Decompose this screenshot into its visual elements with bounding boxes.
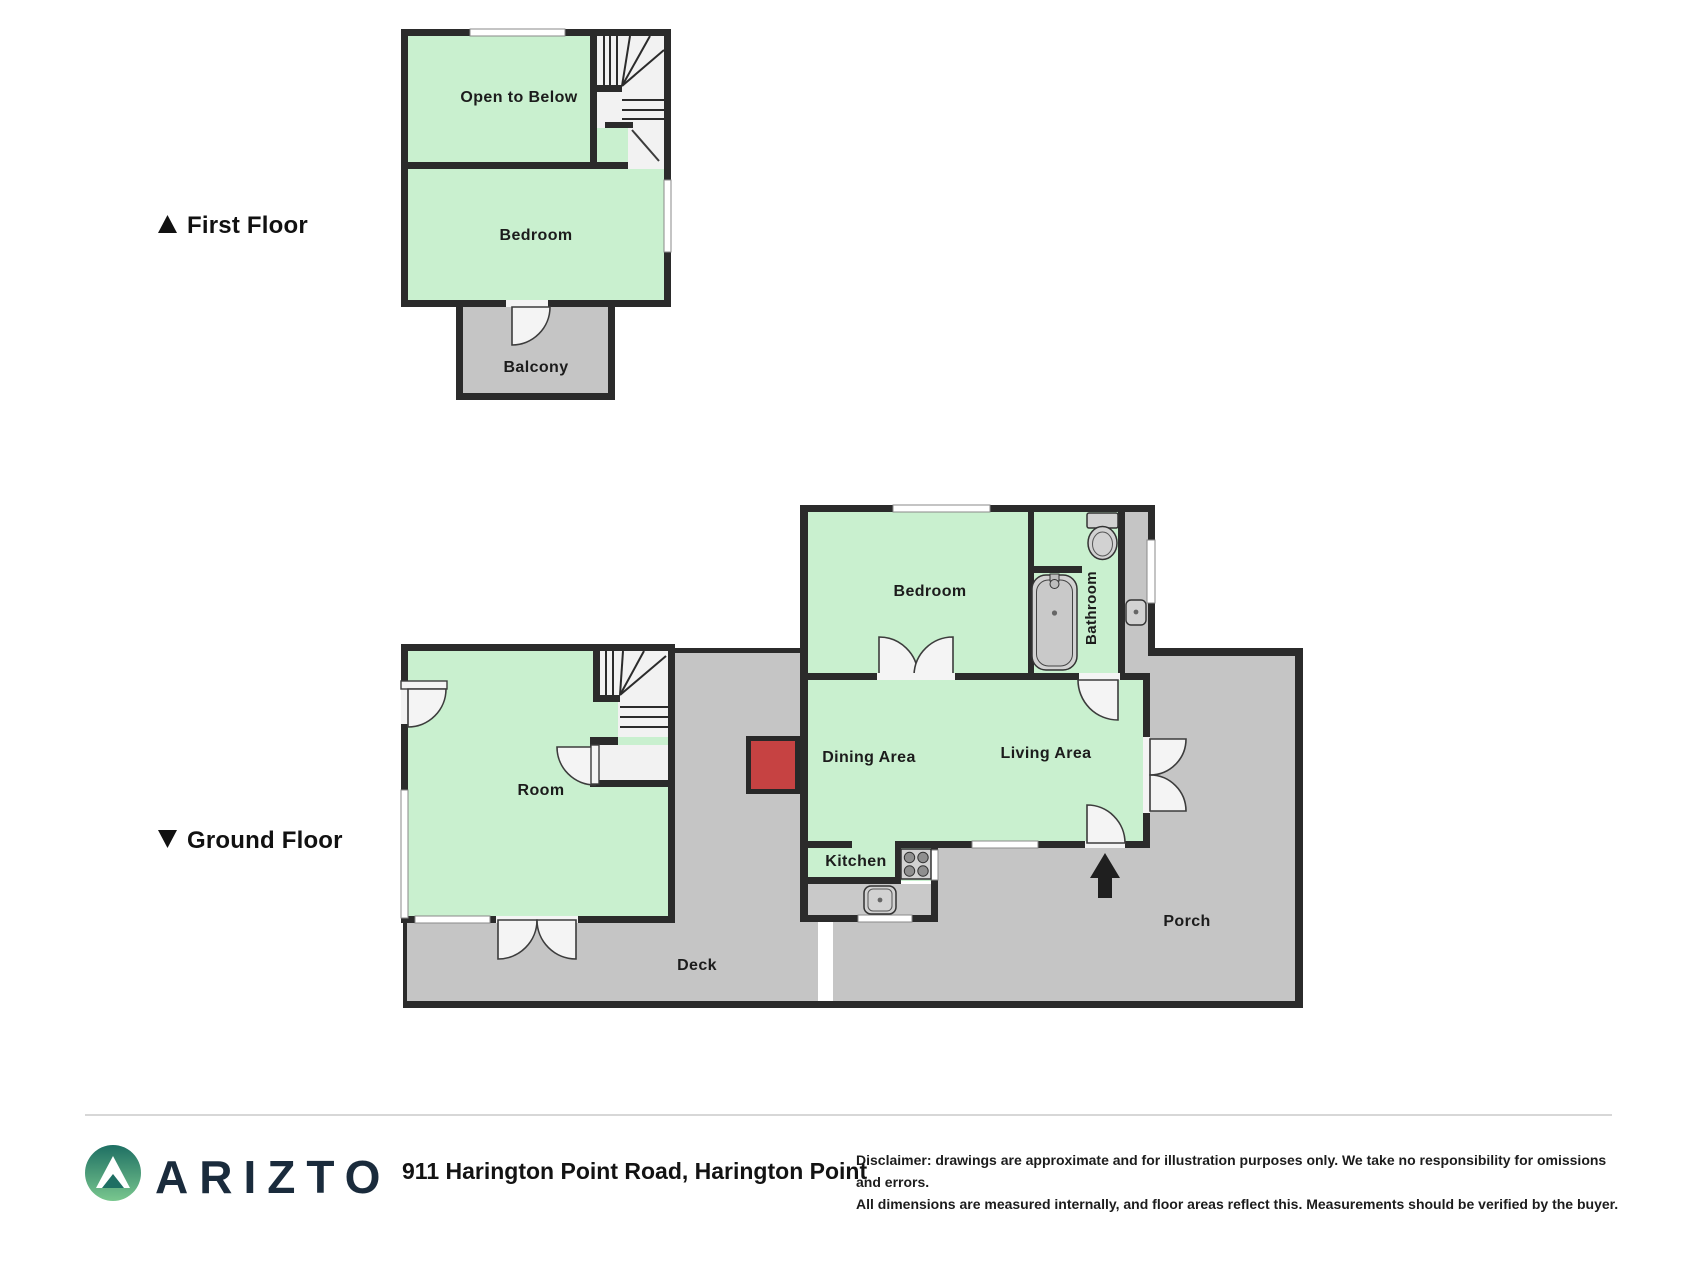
first-floor-bedroom-window — [664, 180, 671, 252]
first-floor-title: First Floor — [187, 212, 308, 239]
vestibule-window — [1147, 540, 1155, 603]
triangle-down-icon — [158, 830, 177, 848]
label-bathroom: Bathroom — [1083, 571, 1100, 645]
room-bottom-window — [415, 916, 490, 923]
outdoor-bottom-boundary — [403, 1001, 1303, 1008]
label-ff-bedroom: Bedroom — [499, 227, 572, 244]
stove-icon — [901, 849, 931, 879]
deck-porch-gap — [818, 920, 833, 1001]
footer-divider — [85, 1114, 1612, 1116]
floorplan-page: Open to Below Bedroom Balcony First Floo… — [0, 0, 1707, 1280]
kitchen-right-window — [931, 850, 938, 880]
kitchen-bottom-window — [858, 915, 912, 922]
first-floor-section-label: First Floor — [158, 212, 308, 239]
sink-icon — [864, 886, 896, 914]
label-porch: Porch — [1163, 913, 1210, 930]
living-bottom-window — [972, 841, 1038, 848]
label-room: Room — [518, 782, 565, 799]
deck-left-boundary — [403, 920, 407, 1005]
ground-floor-kitchen-block: Kitchen — [800, 836, 938, 922]
brand-name: ARIZTO — [155, 1150, 391, 1204]
basin-icon — [1126, 600, 1146, 625]
triangle-up-icon — [158, 215, 177, 233]
corridor-top-boundary — [672, 648, 802, 653]
label-open-to-below: Open to Below — [460, 89, 577, 106]
label-living-area: Living Area — [1001, 745, 1092, 762]
footer-disclaimer: Disclaimer: drawings are approximate and… — [856, 1149, 1626, 1215]
ground-floor-room-block: Room — [401, 644, 675, 959]
room-left-window — [401, 790, 408, 918]
floorplan-drawing: Open to Below Bedroom Balcony First Floo… — [0, 0, 1707, 1280]
bathtub-icon — [1032, 574, 1077, 670]
label-balcony: Balcony — [503, 359, 568, 376]
fireplace-feature — [746, 736, 800, 794]
disclaimer-line-1: Disclaimer: drawings are approximate and… — [856, 1149, 1626, 1193]
mountain-circle-logo-icon — [84, 1144, 142, 1202]
first-floor-plan: Open to Below Bedroom Balcony — [401, 29, 671, 400]
porch-top-wall — [1148, 648, 1303, 656]
label-kitchen: Kitchen — [825, 853, 886, 870]
bedroom-top-window — [893, 505, 990, 512]
label-gf-bedroom: Bedroom — [893, 583, 966, 600]
ground-floor-living-dining-block: Dining Area Living Area — [800, 673, 1186, 848]
porch-right-wall — [1295, 648, 1303, 1008]
label-deck: Deck — [677, 957, 717, 974]
stair-landing — [628, 128, 664, 169]
label-dining-area: Dining Area — [822, 749, 916, 766]
bathroom-half-wall — [1034, 566, 1082, 573]
toilet-icon — [1087, 513, 1118, 560]
disclaimer-line-2: All dimensions are measured internally, … — [856, 1193, 1626, 1215]
footer-address: 911 Harington Point Road, Harington Poin… — [402, 1158, 867, 1185]
first-floor-top-window — [470, 29, 565, 36]
ground-floor-title: Ground Floor — [187, 827, 343, 854]
stair-landing — [598, 745, 668, 780]
ground-floor-section-label: Ground Floor — [158, 827, 343, 854]
